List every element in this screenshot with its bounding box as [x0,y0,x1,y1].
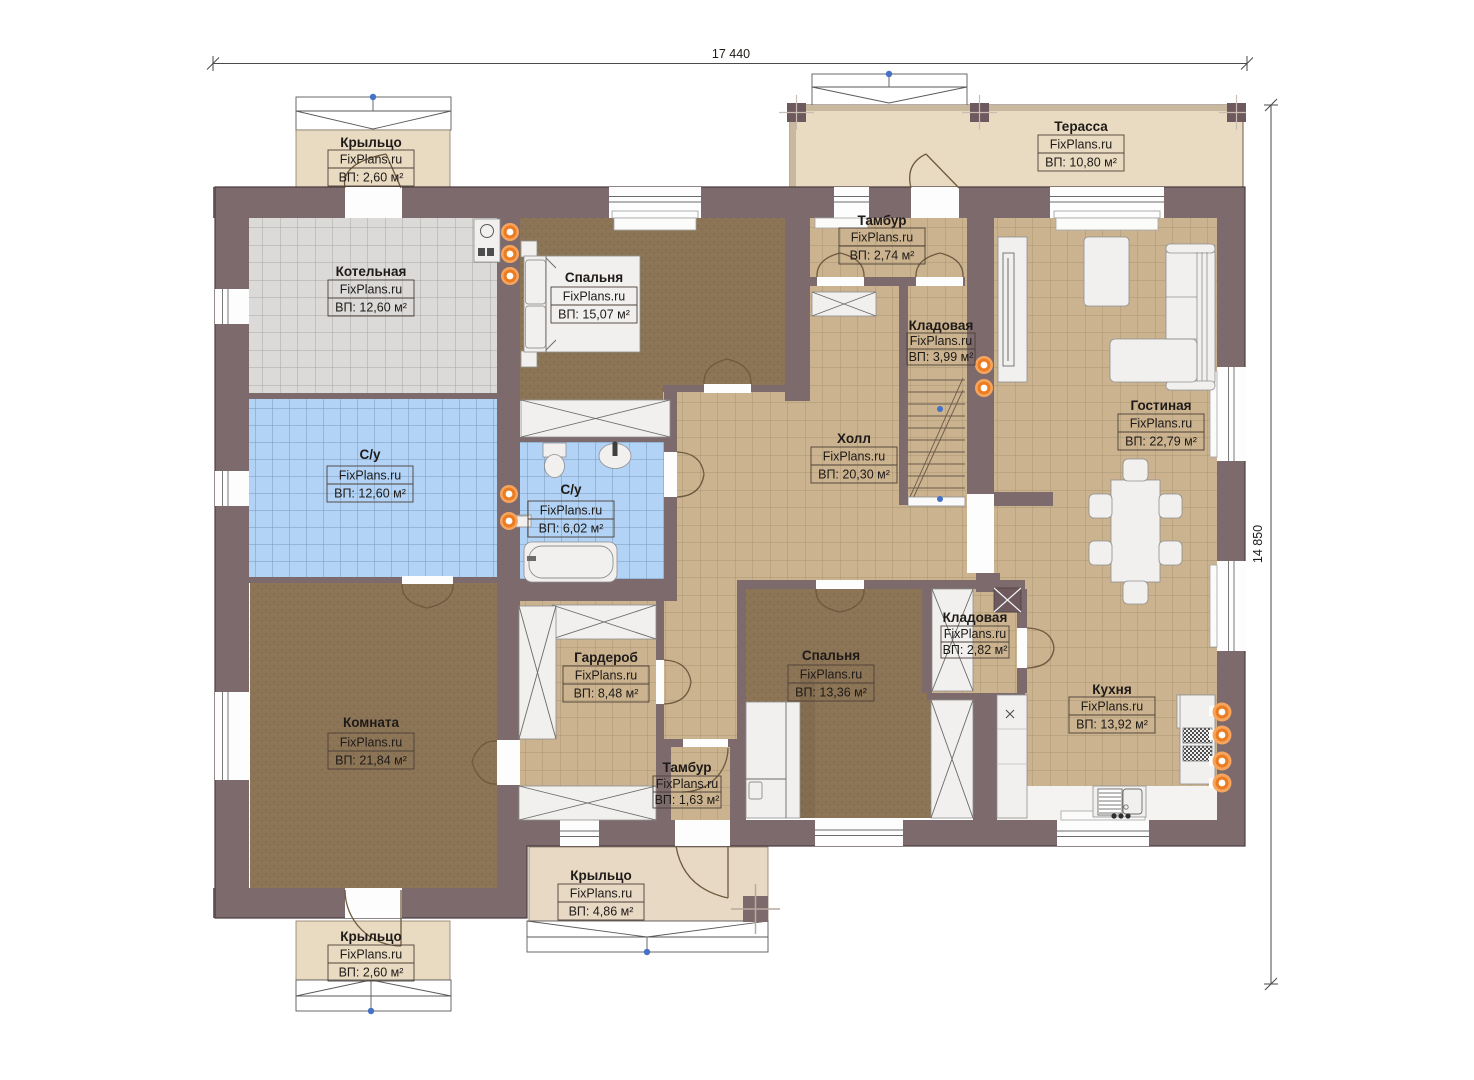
svg-text:ВП: 12,60 м²: ВП: 12,60 м² [335,301,407,315]
svg-text:Котельная: Котельная [336,264,407,279]
svg-text:ВП: 2,74 м²: ВП: 2,74 м² [850,249,915,263]
svg-text:Гостиная: Гостиная [1130,398,1191,413]
svg-text:Кладовая: Кладовая [909,318,974,333]
svg-text:ВП: 20,30 м²: ВП: 20,30 м² [818,468,890,482]
svg-text:Комната: Комната [343,715,400,730]
svg-text:ВП: 10,80 м²: ВП: 10,80 м² [1045,156,1117,170]
svg-text:FixPlans.ru: FixPlans.ru [800,668,863,682]
svg-text:ВП: 12,60 м²: ВП: 12,60 м² [334,487,406,501]
svg-text:ВП: 13,92 м²: ВП: 13,92 м² [1076,718,1148,732]
svg-text:FixPlans.ru: FixPlans.ru [340,736,403,750]
svg-text:17 440: 17 440 [712,47,750,61]
svg-text:ВП: 3,99 м²: ВП: 3,99 м² [909,350,974,364]
svg-text:ВП: 8,48 м²: ВП: 8,48 м² [574,687,639,701]
svg-text:ВП: 13,36 м²: ВП: 13,36 м² [795,686,867,700]
svg-text:Тамбур: Тамбур [858,213,907,228]
svg-text:FixPlans.ru: FixPlans.ru [1130,417,1193,431]
svg-text:Крыльцо: Крыльцо [570,868,631,883]
svg-text:FixPlans.ru: FixPlans.ru [340,283,403,297]
svg-text:FixPlans.ru: FixPlans.ru [339,469,402,483]
svg-text:Гардероб: Гардероб [574,650,638,665]
svg-text:FixPlans.ru: FixPlans.ru [1050,138,1113,152]
svg-text:FixPlans.ru: FixPlans.ru [823,450,886,464]
svg-text:ВП: 21,84 м²: ВП: 21,84 м² [335,754,407,768]
svg-text:FixPlans.ru: FixPlans.ru [910,334,973,348]
svg-text:FixPlans.ru: FixPlans.ru [570,887,633,901]
svg-text:Спальня: Спальня [802,648,860,663]
svg-text:Кухня: Кухня [1092,682,1131,697]
svg-text:ВП: 2,60 м²: ВП: 2,60 м² [339,171,404,185]
svg-text:14 850: 14 850 [1251,525,1265,563]
svg-text:FixPlans.ru: FixPlans.ru [575,669,638,683]
svg-text:FixPlans.ru: FixPlans.ru [851,231,914,245]
svg-text:С/у: С/у [560,482,582,497]
svg-text:Холл: Холл [837,431,871,446]
svg-text:ВП: 4,86 м²: ВП: 4,86 м² [569,905,634,919]
svg-text:FixPlans.ru: FixPlans.ru [340,948,403,962]
svg-text:ВП: 1,63 м²: ВП: 1,63 м² [655,793,720,807]
svg-text:Тамбур: Тамбур [663,760,712,775]
svg-text:FixPlans.ru: FixPlans.ru [944,627,1007,641]
svg-text:ВП: 6,02 м²: ВП: 6,02 м² [539,522,604,536]
svg-text:FixPlans.ru: FixPlans.ru [1081,700,1144,714]
svg-text:FixPlans.ru: FixPlans.ru [656,777,719,791]
svg-text:Крыльцо: Крыльцо [340,929,401,944]
svg-text:ВП: 22,79 м²: ВП: 22,79 м² [1125,435,1197,449]
svg-text:С/у: С/у [359,447,381,462]
svg-text:Крыльцо: Крыльцо [340,135,401,150]
svg-text:ВП: 2,82 м²: ВП: 2,82 м² [943,643,1008,657]
svg-text:Терасса: Терасса [1054,119,1108,134]
svg-text:FixPlans.ru: FixPlans.ru [563,290,626,304]
svg-text:Спальня: Спальня [565,270,623,285]
svg-text:FixPlans.ru: FixPlans.ru [540,504,603,518]
svg-text:Кладовая: Кладовая [943,610,1008,625]
svg-text:FixPlans.ru: FixPlans.ru [340,153,403,167]
svg-text:ВП: 15,07 м²: ВП: 15,07 м² [558,308,630,322]
svg-text:ВП: 2,60 м²: ВП: 2,60 м² [339,966,404,980]
